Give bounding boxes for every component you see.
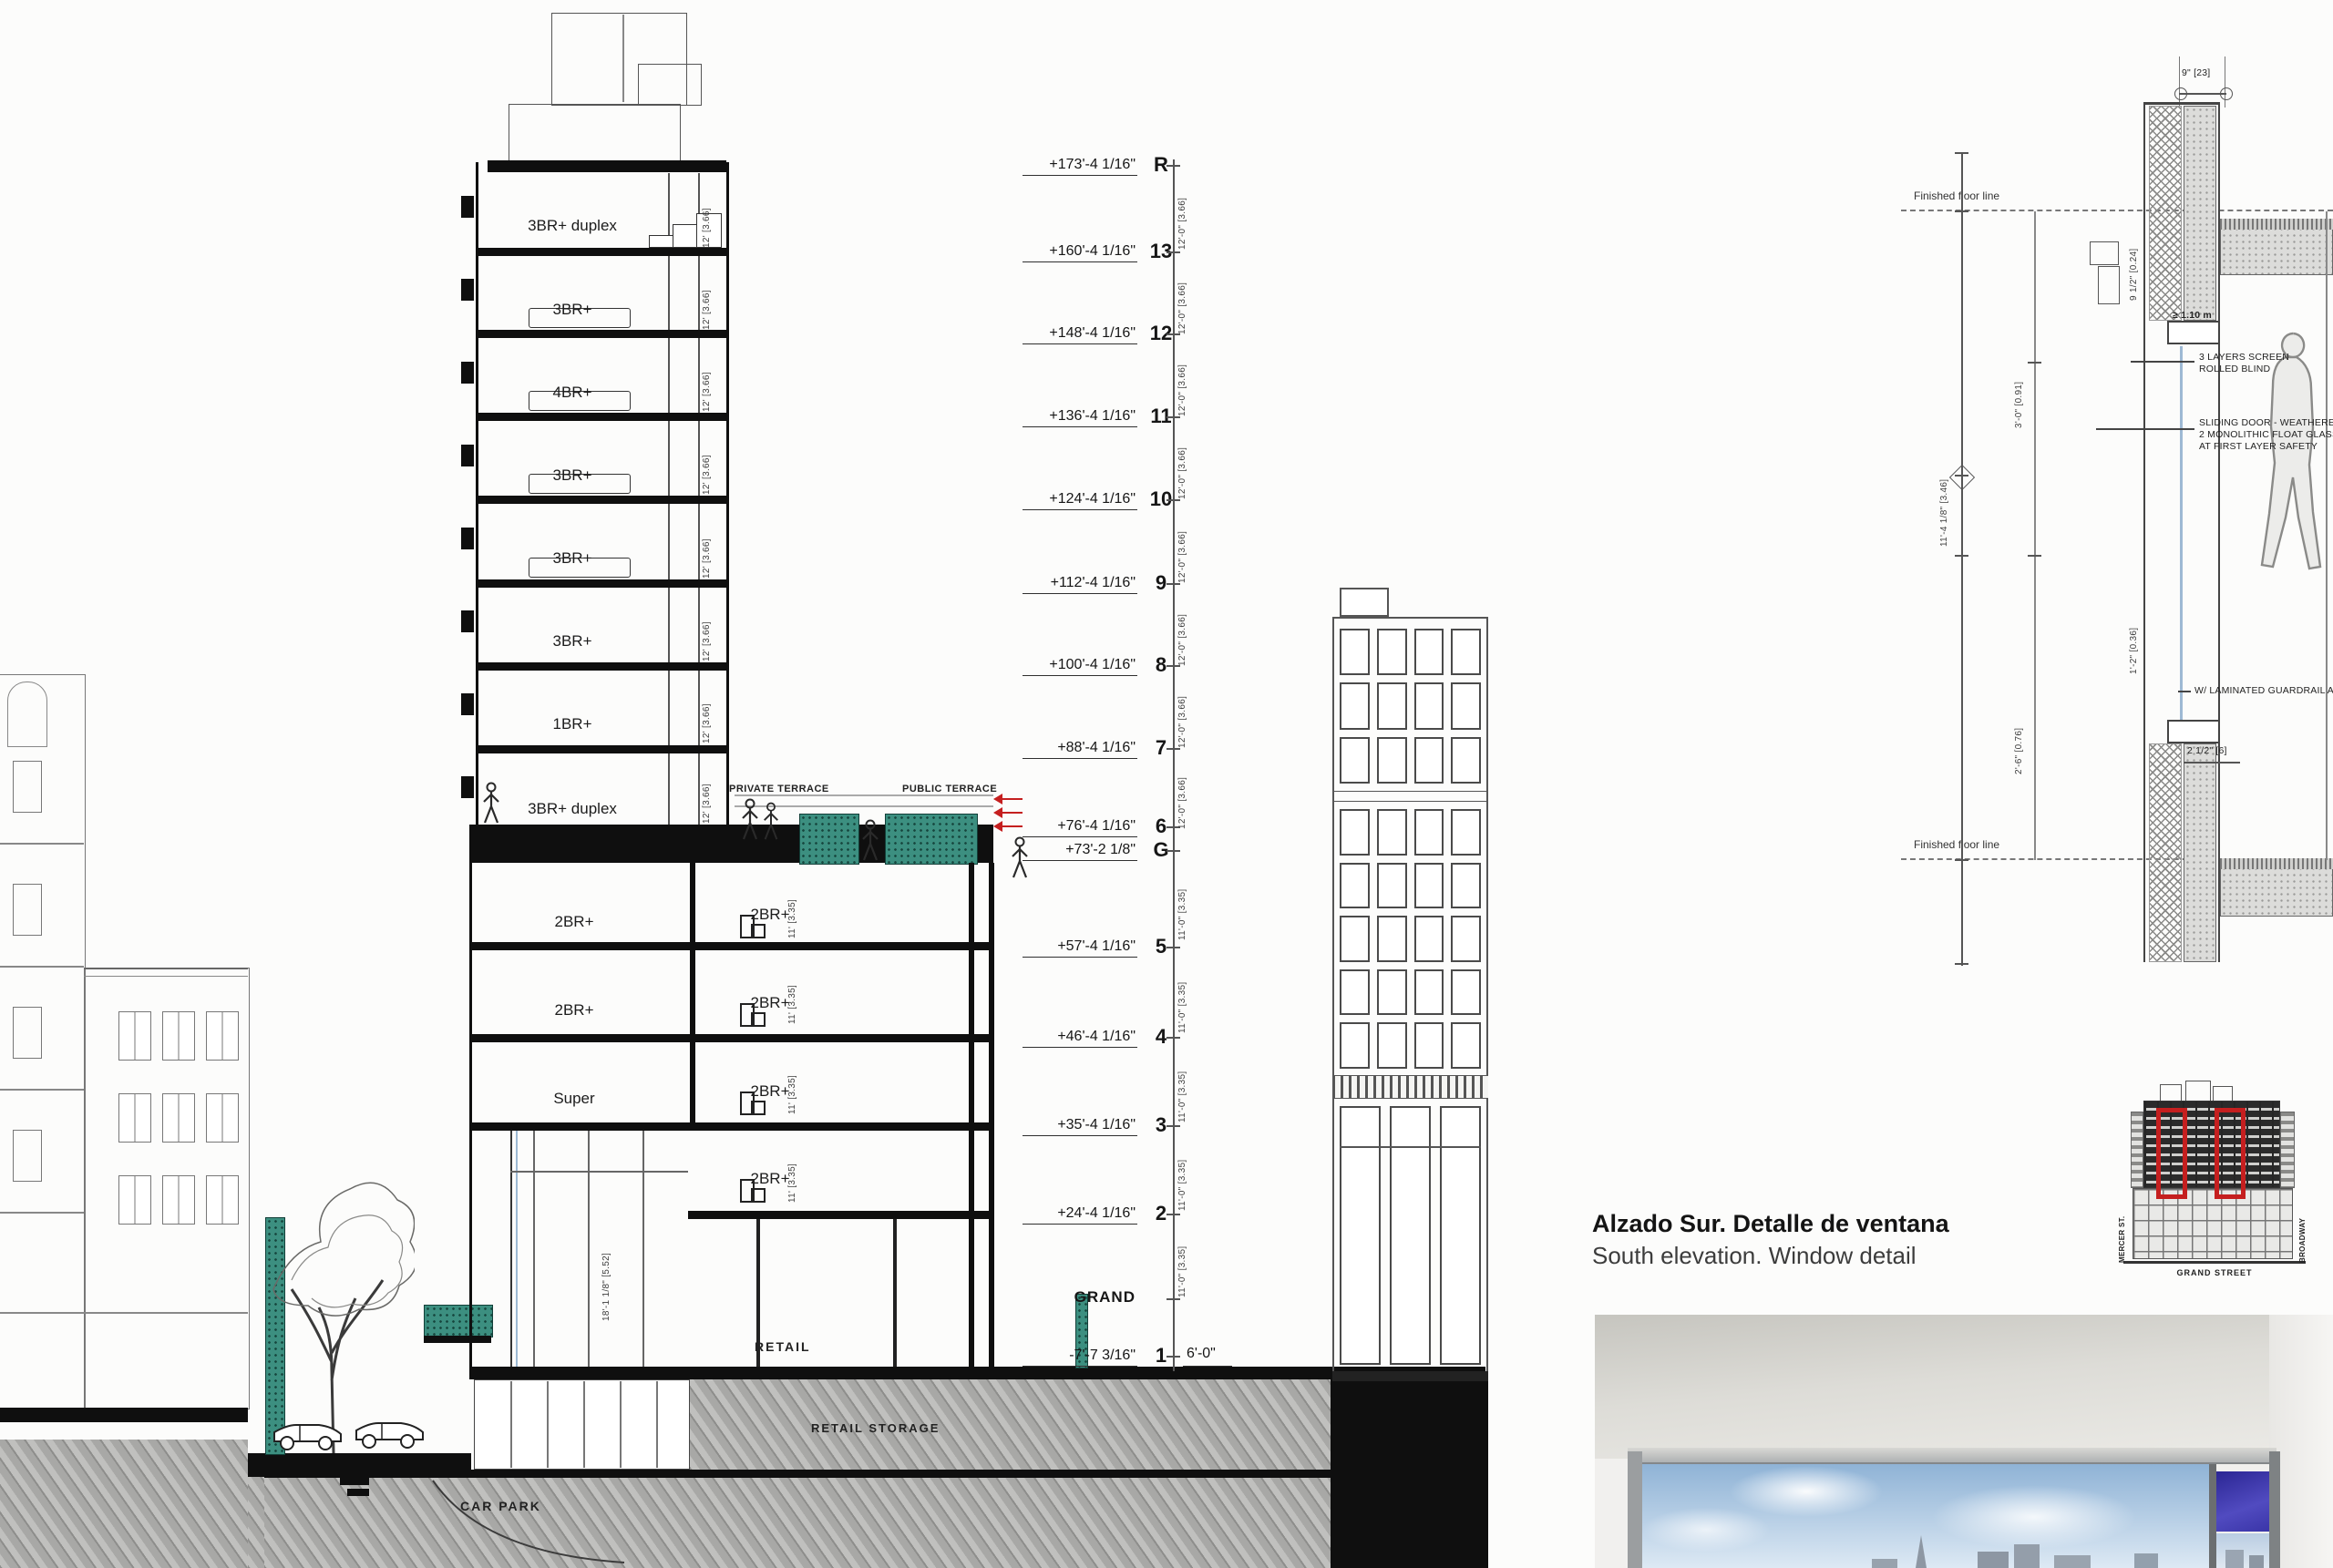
floor-slab [469,1122,993,1131]
floor-height-dim: 12' [3.66] [702,169,712,248]
window-cell [1451,863,1481,909]
window-cell [1340,629,1370,675]
window-cell [1414,629,1444,675]
car [269,1414,346,1452]
window-cell [1451,629,1481,675]
shaft-wall [989,863,994,1367]
gap-dim: 12'-0" [3.66] [1177,252,1187,334]
floor-height-dim: 11' [3.35] [787,1130,797,1203]
floor-height-dim: 11' [3.35] [787,1041,797,1114]
floor-height-dim: 11' [3.35] [787,866,797,938]
subgrade-hatch [0,1440,248,1568]
person-figure [740,798,760,842]
unit-label: Super [510,1090,638,1108]
gap-dim: 12'-0" [3.66] [1177,584,1187,666]
window-head-bar [1628,1448,2276,1464]
car-park-hatch [264,1478,1331,1568]
cornice-line [0,966,84,968]
floor-slab [476,745,729,753]
mullion [510,1381,512,1468]
level-elevation: +57'-4 1/16" [1057,938,1136,955]
window-cell [1340,682,1370,729]
floor-height-dim: 12' [3.66] [702,500,712,579]
lower-wall-left [469,863,472,1367]
balcony-edge [510,1171,688,1173]
sill-mark [461,610,474,632]
level-elevation: +88'-4 1/16" [1057,740,1136,756]
window-cell [1340,809,1370,856]
dim-tick [1166,1298,1180,1300]
window-cell [1414,737,1444,784]
person-figure [860,818,880,864]
slab-topping [2220,219,2333,230]
window-cell [1414,1022,1444,1069]
storefront-bay [1340,1106,1381,1365]
level-elevation: +100'-4 1/16" [1049,657,1136,673]
skyline-tower [1872,1559,1897,1568]
exterior-face-line [2143,102,2220,105]
floor-height-dim: 12' [3.66] [702,747,712,824]
storefront-bay [1390,1106,1431,1365]
note-line: ROLLED BLIND [2199,364,2289,375]
mullion [620,1381,622,1468]
dim-tick [1166,1125,1180,1127]
window-cell [1377,969,1407,1016]
skyline-spire [1916,1535,1927,1568]
level-underline [1023,593,1137,594]
window-cell [1340,969,1370,1016]
stair-step [333,1467,369,1474]
dim-tick [1166,947,1180,948]
blockwork [2184,106,2216,321]
window-cell [1414,969,1444,1016]
window-cell [1340,916,1370,962]
floor-slab [476,413,729,421]
gap-dim: 11'-0" [3.35] [1177,951,1187,1033]
blocking-piece [2098,266,2120,304]
leader-line [2096,428,2194,430]
level-elevation: GRAND [1074,1288,1136,1307]
window [118,1093,151,1143]
note-line: 2 MONOLITHIC FLOAT GLASS [2199,429,2333,441]
stair-step [347,1489,369,1496]
balcony-step [751,1012,766,1027]
sill-mark [461,445,474,466]
window-mullion [2209,1464,2216,1568]
window [162,1011,195,1061]
window [13,761,42,813]
level-underline [1023,1366,1137,1367]
window-left-jamb [1628,1451,1642,1568]
mullion [533,1131,535,1367]
window [206,1011,239,1061]
sill-mark [461,693,474,715]
storefront-line [0,1312,84,1314]
window-cell [1451,809,1481,856]
cornice-line [0,843,84,845]
window [118,1175,151,1225]
blocking-piece [2090,241,2119,265]
gap-dim: 12'-0" [3.66] [1177,334,1187,416]
slab-topping [2220,858,2333,869]
sill-mark [461,776,474,798]
level-underline [1023,758,1137,759]
level-underline [1023,836,1137,837]
level-underline [1023,675,1137,676]
unit-label: 3BR+ [509,301,636,319]
wind-arrow [999,798,1023,800]
cornice [84,968,248,977]
note-line: SLIDING DOOR - WEATHERED [2199,417,2333,429]
wind-arrow [999,825,1023,827]
level-elevation: +136'-4 1/16" [1049,408,1136,425]
window [162,1175,195,1225]
skyline-tower [1978,1552,2009,1568]
terrace-hedge [885,814,978,865]
photo-ceiling [1595,1315,2333,1459]
unit-label: 2BR+ [510,913,638,931]
car [351,1412,428,1450]
mullion [583,1381,585,1468]
balcony-step [751,1188,766,1203]
mullion [547,1381,549,1468]
thumbnail-elevation: GRAND STREET MERCER ST. BROADWAY [2123,1081,2306,1287]
railing-line [735,794,993,796]
dim-line [1173,159,1175,1371]
stair-step [340,1478,369,1485]
level-underline [1023,860,1137,861]
cornice-line [0,1212,84,1214]
window-cell [1340,863,1370,909]
window-cell [1451,916,1481,962]
roof-bulkhead [2185,1081,2211,1102]
dim-tick [1166,1037,1180,1039]
level-underline [1023,957,1137,958]
caption-subtitle: South elevation. Window detail [1592,1242,1949,1270]
street-label-right: BROADWAY [2298,1190,2307,1263]
floor-height-dim: 12' [3.66] [702,333,712,412]
window-cell [1451,1022,1481,1069]
glazing-line [2180,346,2183,720]
floor-slab [476,496,729,504]
dim-node [2220,87,2233,100]
floor-height-dim: 11' [3.35] [787,951,797,1024]
window-head-frame [2167,321,2220,344]
side-wing [2280,1112,2295,1188]
window-sky-view [1642,1464,2209,1568]
dim-tick [1955,210,1968,212]
tinted-pane [2216,1471,2269,1532]
gap-dim: 12'-0" [3.66] [1177,417,1187,499]
mullion [656,1381,658,1468]
roof-bulkhead [638,64,702,106]
gap-dim: 12'-0" [3.66] [1177,666,1187,748]
detail-dim: 2 1/2" [6] [2187,745,2227,757]
roof-bulkhead [509,104,681,166]
window [162,1093,195,1143]
blockwork [2184,743,2216,962]
note-line: 3 LAYERS SCREEN [2199,352,2289,364]
floor-slab [476,579,729,588]
unit-label: 3BR+ [509,549,636,568]
level-row: GRAND [1021,1288,1181,1312]
transom-line [1340,1146,1481,1148]
window-cell [1340,1022,1370,1069]
ground-line [2123,1261,2306,1264]
atrium-dim: 18'-1 1/8" [5.52] [601,1203,612,1321]
floor-line-label: Finished floor line [1914,190,1999,202]
level-elevation: +35'-4 1/16" [1057,1117,1136,1133]
floor-slab [476,330,729,338]
gap-dim: 12'-0" [3.66] [1177,168,1187,250]
shaft-wall [969,863,974,1367]
skyline-tower [2014,1544,2040,1568]
dim-node [2174,87,2187,100]
level-elevation: +46'-4 1/16" [1057,1029,1136,1045]
window [206,1093,239,1143]
bulkhead-line [622,15,624,102]
window [13,884,42,936]
insulation [2149,743,2182,962]
level-elevation: +160'-4 1/16" [1049,243,1136,260]
atrium-wall [510,1131,512,1367]
leader-line [2178,691,2191,692]
sill-mark [461,528,474,549]
floor-slab [688,1211,993,1219]
note-block: 3 LAYERS SCREEN ROLLED BLIND [2199,352,2289,375]
caption: Alzado Sur. Detalle de ventana South ele… [1592,1210,1949,1270]
gap-dim: 11'-0" [3.35] [1177,858,1187,940]
interior-photo [1595,1315,2333,1568]
public-terrace-label: PUBLIC TERRACE [902,784,997,794]
unit-label: 2BR+ [720,994,820,1012]
window-right-jamb [2269,1451,2280,1568]
unit-label: 3BR+ [509,632,636,651]
unit-label: 3BR+ duplex [509,217,636,235]
level-underline [1023,261,1137,262]
dim-tick [1166,1356,1180,1358]
window-cell [1451,737,1481,784]
caption-title: Alzado Sur. Detalle de ventana [1592,1210,1949,1238]
level-underline [1023,1047,1137,1048]
unit-label: 3BR+ duplex [509,800,636,818]
neighbor-base [1332,1371,1488,1381]
mullion [642,1131,644,1367]
upper-window-grid [1340,629,1481,784]
detail-dim: 3'-0" [0.91] [2014,346,2024,428]
planter [424,1336,491,1343]
boundary-line [2326,211,2328,860]
balcony-step [751,924,766,938]
window-cell [1377,863,1407,909]
arched-window [7,682,47,747]
window [13,1007,42,1059]
level-elevation: +148'-4 1/16" [1049,325,1136,342]
window-cell [1377,682,1407,729]
highlight-box [2156,1108,2187,1199]
guardrail-note: W/ LAMINATED GUARDRAIL AT 42IN [2194,685,2333,697]
note-block: SLIDING DOOR - WEATHERED 2 MONOLITHIC FL… [2199,417,2333,453]
demising-wall [690,863,695,1122]
dim-line [2034,211,2036,860]
person-figure [762,802,780,842]
level-elevation: -7'-7 3/16" [1069,1348,1136,1364]
roof-bulkhead [2160,1084,2182,1102]
sill-mark [461,196,474,218]
floor-line-label: Finished floor line [1914,838,1999,851]
highlight-box [2215,1108,2246,1199]
window-cell [1451,682,1481,729]
string-course [1332,791,1488,802]
detail-dim: 11'-4 1/8" [3.46] [1939,437,1949,547]
level-underline [1023,426,1137,427]
ramp-curve [428,1476,629,1567]
balcony-step [751,1101,766,1115]
wind-arrow [999,812,1023,814]
window-sill-frame [2167,720,2220,743]
sill-mark [461,362,474,384]
exterior-face-line [2143,102,2145,962]
parapet-bulkhead [1340,588,1389,617]
floor-slab [476,662,729,671]
level-elevation: +73'-2 1/8" [1065,842,1136,858]
floor-slab [476,248,729,256]
window-cell [1377,629,1407,675]
grade-dim: 6'-0" [1187,1346,1216,1362]
skyline-tower [2249,1555,2264,1568]
mid-window-grid [1340,809,1481,1069]
duplex-step [673,224,698,248]
dim-tick [1955,963,1968,965]
roof-slab [488,160,726,172]
unit-label: 2BR+ [720,906,820,924]
hedge [424,1305,493,1337]
basement-slab [264,1470,1331,1478]
insulation [2149,106,2182,321]
window-cell [1451,969,1481,1016]
mullion [588,1131,590,1367]
window-cell [1377,809,1407,856]
tower-wall-right [726,162,729,826]
leader-line [2131,361,2194,363]
dim-tick [1955,152,1968,154]
window-cell [1377,1022,1407,1069]
floor-height-dim: 12' [3.66] [702,251,712,330]
skyline-tower [2054,1555,2091,1568]
window-cell [1377,737,1407,784]
tower-wall-left [476,162,478,863]
dim-tick [1166,850,1180,852]
subgrade-mass [1331,1379,1488,1568]
window [206,1175,239,1225]
dim-tick [1955,555,1968,557]
level-underline [1023,175,1137,176]
floor-height-dim: 12' [3.66] [702,665,712,743]
floor-slab [469,1034,993,1042]
dim-tick [2028,362,2041,364]
dim-tick [1166,165,1180,167]
level-underline [1023,1224,1137,1225]
detail-dim: 2'-6" [0.76] [2014,692,2024,774]
unit-label: 4BR+ [509,384,636,402]
window-cell [1340,737,1370,784]
detail-dim: 9 1/2" [0.24] [2129,228,2139,301]
unit-label: 3BR+ [509,466,636,485]
atrium-glass [516,1131,518,1367]
window-cell [1414,863,1444,909]
skyline-tower [2225,1550,2244,1568]
unit-label: 1BR+ [509,715,636,733]
guard-min-dim: ≥ 1.10 m [2173,310,2212,322]
terrace-hedge [799,814,859,865]
unit-label: 2BR+ [720,1170,820,1188]
private-terrace-label: PRIVATE TERRACE [729,784,829,794]
level-underline [1023,1135,1137,1136]
detail-dim: 1'-2" [0.36] [2129,601,2139,674]
person-figure [481,782,501,825]
window [118,1011,151,1061]
dim-tick [1955,859,1968,861]
level-underline [1023,509,1137,510]
unit-label: 2BR+ [720,1082,820,1101]
floor-height-dim: 12' [3.66] [702,416,712,495]
dim-line [1961,153,1963,966]
sill-mark [461,279,474,301]
gap-dim: 11'-0" [3.35] [1177,1129,1187,1211]
gap-dim: 11'-0" [3.35] [1177,1040,1187,1122]
gap-dim: 11'-0" [3.35] [1177,1215,1187,1297]
column [893,1219,897,1367]
ground-band [0,1408,248,1422]
window-cell [1377,916,1407,962]
skyline-tower [2134,1553,2158,1568]
storefront-grid [1340,1106,1481,1365]
level-elevation: +112'-4 1/16" [1051,575,1136,591]
level-underline [1023,343,1137,344]
head-dim: 9" [23] [2182,67,2210,79]
level-elevation: +76'-4 1/16" [1057,818,1136,835]
right-pane-sky [2216,1533,2269,1568]
tree [255,1143,415,1458]
window-cell [1414,809,1444,856]
floor-slab [469,942,993,950]
level-elevation: +24'-4 1/16" [1057,1205,1136,1222]
retail-label: RETAIL [755,1339,811,1354]
dim-tick [2028,555,2041,557]
window [13,1130,42,1182]
gap-dim: 12'-0" [3.66] [1177,747,1187,829]
side-wing [2131,1112,2143,1188]
storefront-bay [1440,1106,1481,1365]
gap-dim: 12'-0" [3.66] [1177,501,1187,583]
window-cell [1414,916,1444,962]
retail-storage-label: RETAIL STORAGE [811,1421,940,1435]
storefront-line [84,1312,248,1314]
drawing-sheet: RETAIL STORAGE CAR PARK [0,0,2333,1568]
level-elevation: +173'-4 1/16" [1049,157,1136,173]
dim-node-diamond [1949,465,1975,490]
retail-storage-hatch [690,1379,1331,1470]
dim-line [2184,762,2240,764]
street-label-left: MERCER ST. [2118,1190,2126,1263]
cornice-line [0,1089,84,1091]
note-line: AT FIRST LAYER SAFETY [2199,441,2333,453]
street-label-bottom: GRAND STREET [2123,1268,2306,1277]
cornice-dentils [1332,1075,1488,1099]
unit-label: 2BR+ [510,1001,638,1020]
floor-height-dim: 12' [3.66] [702,583,712,661]
level-elevation: +124'-4 1/16" [1049,491,1136,507]
